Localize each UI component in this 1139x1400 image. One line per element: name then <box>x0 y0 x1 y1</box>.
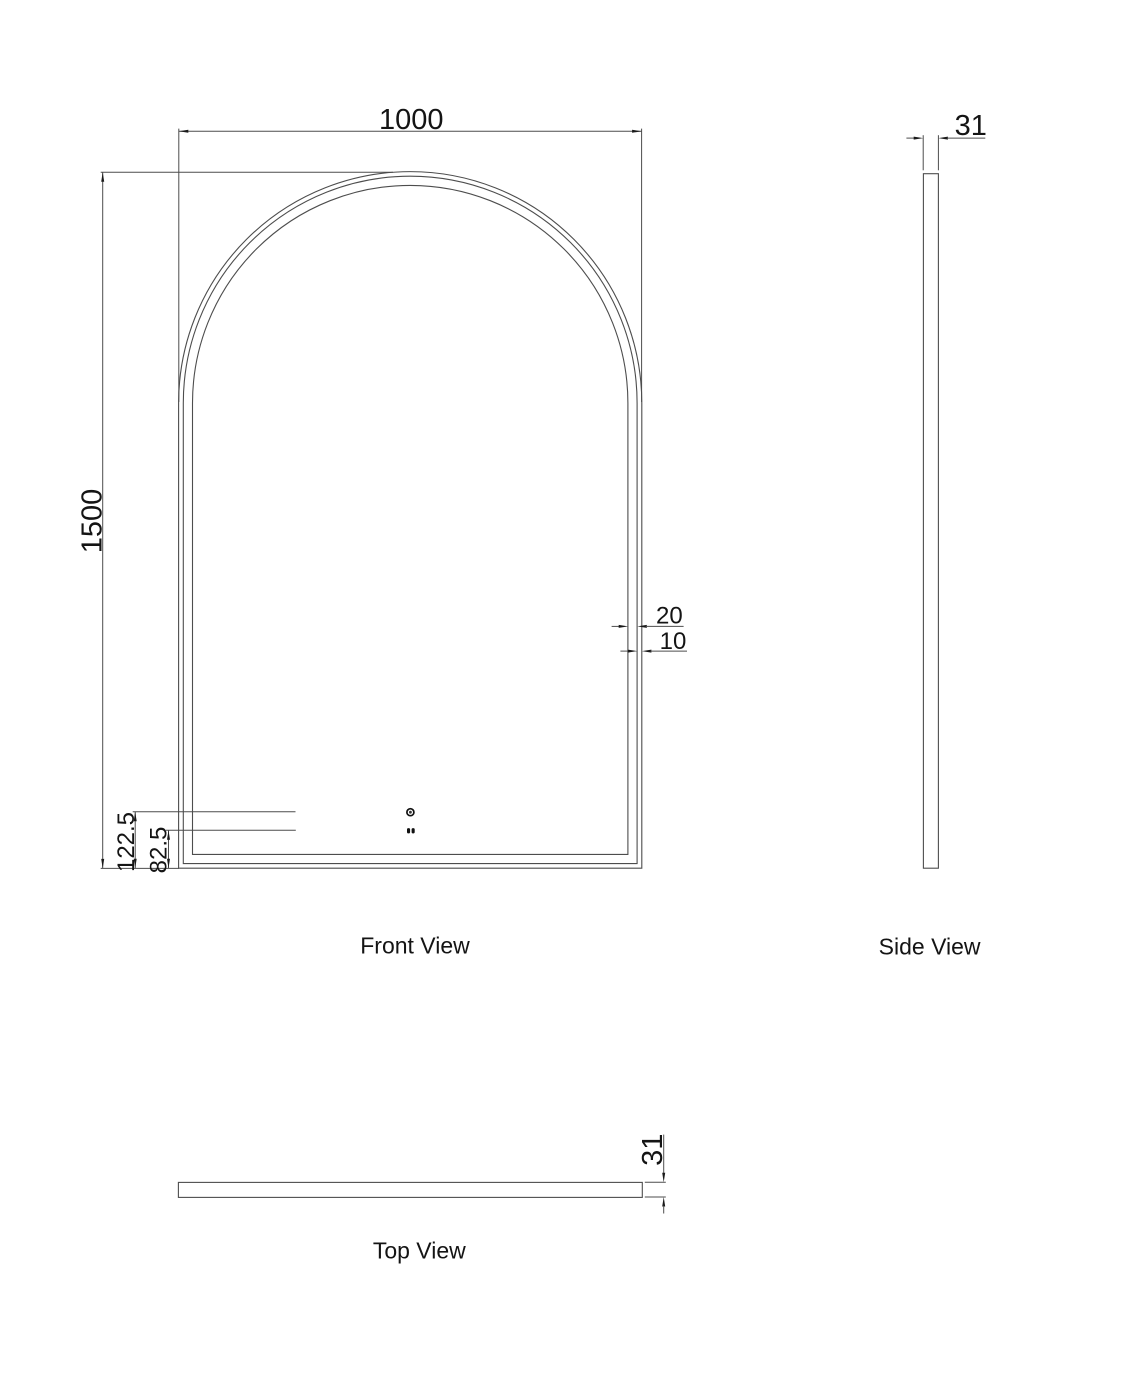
svg-text:Top View: Top View <box>373 1238 466 1264</box>
svg-text:31: 31 <box>637 1134 669 1166</box>
svg-text:1500: 1500 <box>77 489 109 554</box>
svg-text:Side View: Side View <box>879 934 981 960</box>
svg-text:1000: 1000 <box>379 104 444 136</box>
svg-text:31: 31 <box>955 110 987 142</box>
svg-text:82.5: 82.5 <box>145 827 172 874</box>
svg-text:20: 20 <box>656 602 683 629</box>
svg-text:122.5: 122.5 <box>113 812 140 872</box>
svg-text:Front View: Front View <box>360 933 470 959</box>
svg-text:10: 10 <box>660 628 687 655</box>
